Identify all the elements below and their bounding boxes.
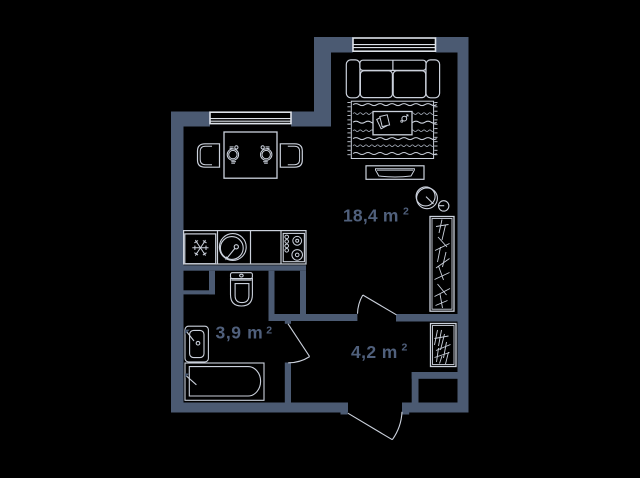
svg-text:3,9 m: 3,9 m	[216, 323, 264, 343]
svg-text:4,2 m: 4,2 m	[351, 342, 398, 362]
svg-text:2: 2	[403, 206, 409, 218]
svg-text:18,4 m: 18,4 m	[343, 205, 399, 225]
svg-text:2: 2	[266, 325, 272, 337]
svg-text:2: 2	[402, 342, 408, 354]
